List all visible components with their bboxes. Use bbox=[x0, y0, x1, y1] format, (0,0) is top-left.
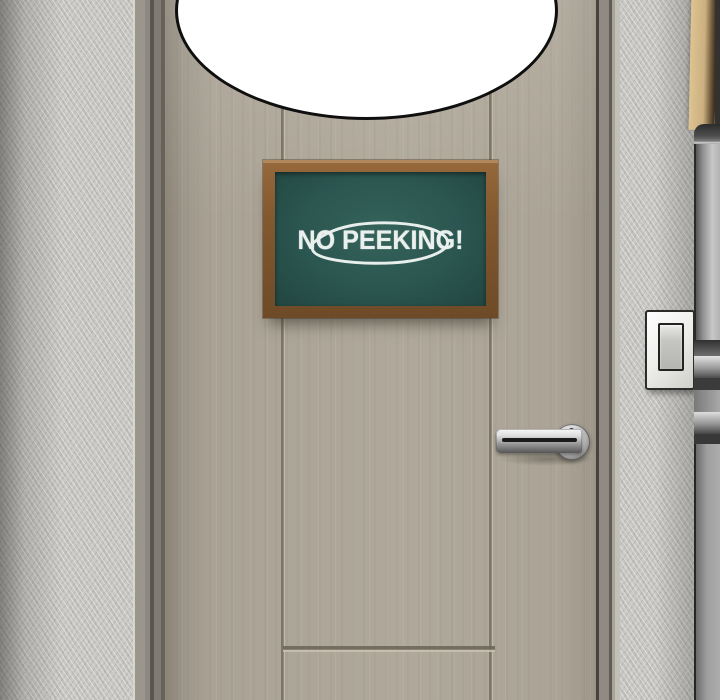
appliance-top-cap bbox=[694, 124, 720, 144]
door-groove-right bbox=[489, 0, 493, 700]
broom-handle bbox=[689, 0, 718, 130]
appliance-chrome-band-2 bbox=[694, 412, 720, 434]
door-frame-right bbox=[596, 0, 620, 700]
handle-slot bbox=[502, 438, 577, 442]
appliance-band-dark bbox=[694, 434, 720, 444]
door-groove-horizontal bbox=[283, 646, 495, 652]
comic-panel: NO PEEKING! bbox=[0, 0, 720, 700]
door-handle-lever bbox=[496, 429, 582, 453]
sign-text: NO PEEKING! bbox=[282, 227, 478, 254]
door-frame-left bbox=[133, 0, 165, 700]
broom-edge-gap bbox=[715, 0, 720, 130]
appliance-upper-panel bbox=[694, 144, 720, 340]
appliance-band-gap bbox=[694, 378, 720, 390]
chalkboard-sign: NO PEEKING! bbox=[263, 160, 498, 318]
wall-corner-shadow bbox=[0, 0, 62, 700]
light-switch-plate bbox=[645, 310, 695, 390]
chalkboard-surface: NO PEEKING! bbox=[275, 172, 486, 306]
appliance-edge bbox=[694, 124, 720, 700]
light-switch-rocker bbox=[658, 323, 684, 371]
appliance-band-mid bbox=[694, 390, 720, 412]
appliance-chrome-band bbox=[694, 356, 720, 378]
appliance-lower-panel bbox=[694, 444, 720, 700]
appliance-band bbox=[694, 340, 720, 356]
